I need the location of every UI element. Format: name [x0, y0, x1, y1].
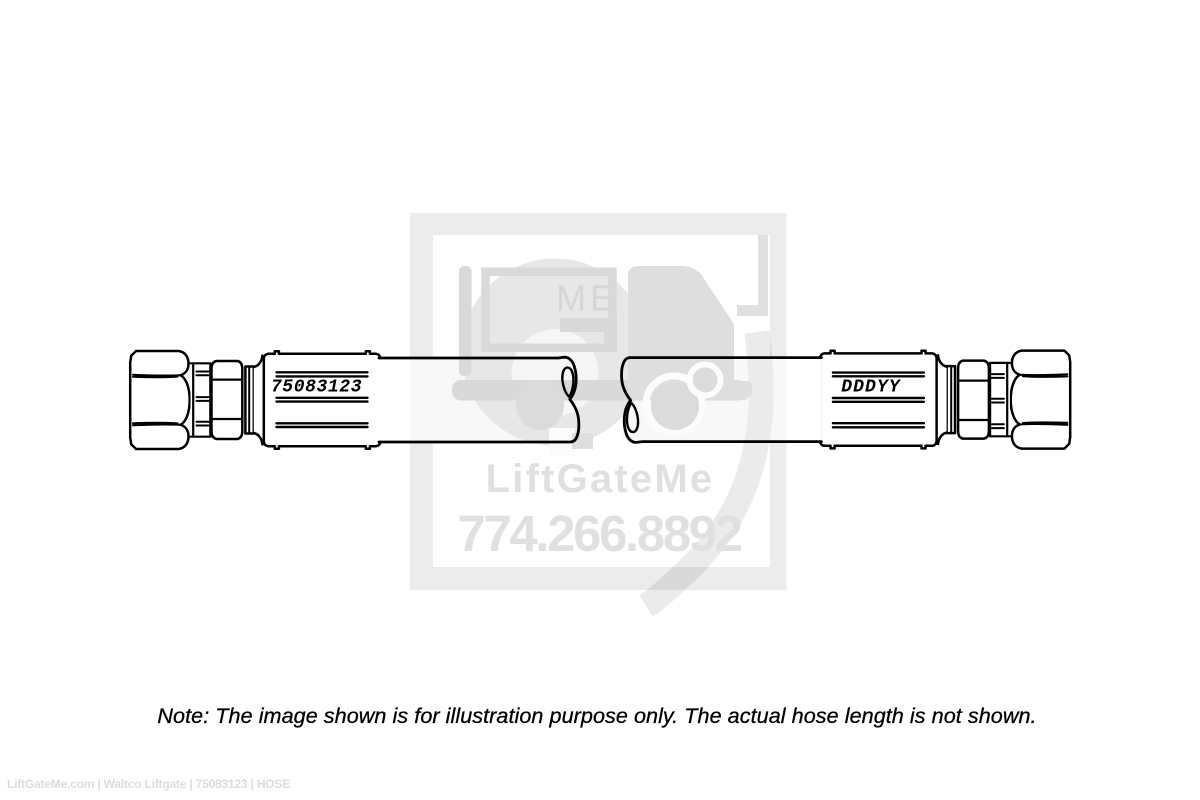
svg-text:LiftGateMe: LiftGateMe [486, 457, 715, 501]
svg-text:774.266.8892: 774.266.8892 [457, 505, 741, 562]
svg-text:ME: ME [556, 278, 618, 319]
